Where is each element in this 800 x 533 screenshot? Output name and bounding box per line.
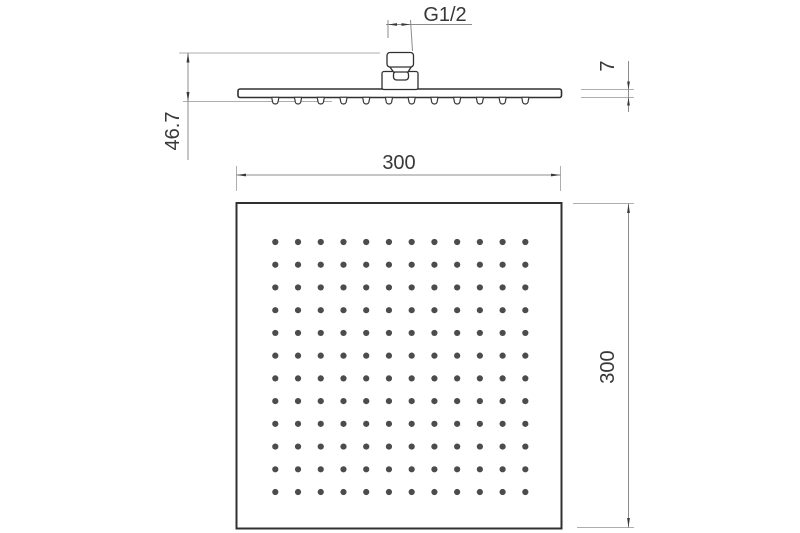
spray-hole: [522, 489, 528, 495]
nozzle-bump: [385, 97, 392, 104]
spray-hole: [318, 375, 324, 381]
connector-nipple: [387, 53, 414, 68]
spray-hole: [431, 307, 437, 313]
width-label: 300: [382, 152, 415, 174]
spray-hole: [363, 239, 369, 245]
nozzle-bump: [499, 97, 506, 104]
spray-hole: [522, 307, 528, 313]
spray-hole: [295, 239, 301, 245]
spray-hole: [340, 466, 346, 472]
spray-hole: [295, 284, 301, 290]
spray-hole: [454, 284, 460, 290]
spray-hole: [363, 443, 369, 449]
spray-hole: [500, 375, 506, 381]
technical-drawing-page: 46.7 G1/2 7: [0, 0, 800, 533]
dimension-width: 300: [237, 152, 561, 191]
spray-hole: [522, 421, 528, 427]
spray-hole: [454, 489, 460, 495]
spray-hole: [409, 398, 415, 404]
nozzle-bump: [454, 97, 461, 104]
spray-hole: [272, 421, 278, 427]
spray-hole: [431, 284, 437, 290]
spray-hole: [477, 262, 483, 268]
spray-hole: [522, 466, 528, 472]
spray-hole: [409, 284, 415, 290]
spray-hole: [477, 421, 483, 427]
nozzle-bump: [431, 97, 438, 104]
spray-hole: [295, 307, 301, 313]
plate-thickness-label: 7: [597, 60, 619, 71]
spray-hole: [500, 443, 506, 449]
spray-hole: [272, 398, 278, 404]
spray-hole: [386, 421, 392, 427]
spray-hole: [522, 330, 528, 336]
spray-hole: [522, 239, 528, 245]
spray-hole: [477, 375, 483, 381]
spray-hole: [454, 239, 460, 245]
nozzle-bump: [363, 97, 370, 104]
spray-hole: [272, 239, 278, 245]
spray-hole: [272, 330, 278, 336]
spray-hole: [522, 375, 528, 381]
dimension-height: 300: [573, 204, 634, 528]
spray-hole: [363, 284, 369, 290]
spray-hole: [454, 353, 460, 359]
spray-hole: [454, 307, 460, 313]
spray-hole: [340, 421, 346, 427]
spray-hole: [477, 307, 483, 313]
spray-hole: [318, 284, 324, 290]
spray-hole: [431, 421, 437, 427]
spray-hole: [500, 330, 506, 336]
spray-hole: [477, 353, 483, 359]
spray-hole: [318, 239, 324, 245]
spray-hole: [431, 239, 437, 245]
spray-hole: [431, 353, 437, 359]
spray-hole: [522, 398, 528, 404]
nozzle-bump: [272, 97, 279, 104]
spray-hole: [340, 239, 346, 245]
spray-hole: [272, 466, 278, 472]
spray-hole: [340, 443, 346, 449]
spray-hole: [363, 489, 369, 495]
spray-hole: [318, 466, 324, 472]
spray-hole: [431, 466, 437, 472]
spray-hole: [363, 375, 369, 381]
shower-head-drawing: 46.7 G1/2 7: [0, 0, 800, 533]
connector-inner-tab: [394, 72, 409, 81]
spray-hole: [431, 443, 437, 449]
spray-hole: [272, 307, 278, 313]
spray-hole: [363, 398, 369, 404]
spray-hole: [386, 443, 392, 449]
spray-hole: [500, 466, 506, 472]
spray-hole: [363, 421, 369, 427]
spray-hole: [363, 262, 369, 268]
spray-hole: [340, 330, 346, 336]
spray-hole: [477, 466, 483, 472]
spray-hole: [477, 330, 483, 336]
spray-hole: [522, 443, 528, 449]
spray-hole: [454, 466, 460, 472]
side-view-nozzles: [272, 97, 529, 104]
spray-hole: [295, 489, 301, 495]
spray-hole: [500, 353, 506, 359]
spray-hole: [272, 375, 278, 381]
spray-hole: [318, 489, 324, 495]
spray-hole: [340, 284, 346, 290]
spray-hole: [318, 307, 324, 313]
spray-hole: [272, 353, 278, 359]
spray-hole: [454, 262, 460, 268]
spray-hole: [386, 353, 392, 359]
spray-hole: [386, 307, 392, 313]
spray-hole: [386, 466, 392, 472]
spray-hole: [363, 330, 369, 336]
spray-hole: [454, 398, 460, 404]
spray-hole: [386, 489, 392, 495]
spray-hole: [363, 466, 369, 472]
spray-hole: [386, 398, 392, 404]
spray-hole: [295, 466, 301, 472]
spray-hole: [386, 262, 392, 268]
spray-hole: [409, 466, 415, 472]
spray-hole: [409, 262, 415, 268]
connector: [382, 53, 418, 90]
spray-hole: [272, 443, 278, 449]
spray-hole: [522, 284, 528, 290]
spray-hole: [454, 443, 460, 449]
spray-hole: [409, 307, 415, 313]
spray-hole: [295, 353, 301, 359]
spray-hole: [318, 330, 324, 336]
nozzle-bump: [522, 97, 529, 104]
spray-hole: [409, 239, 415, 245]
spray-hole: [409, 375, 415, 381]
spray-hole: [363, 353, 369, 359]
spray-hole: [454, 375, 460, 381]
dimension-plate-thickness: 7: [581, 60, 634, 112]
spray-hole: [272, 489, 278, 495]
spray-hole: [295, 421, 301, 427]
spray-hole: [431, 375, 437, 381]
spray-hole: [477, 489, 483, 495]
spray-hole: [409, 353, 415, 359]
side-view: 46.7 G1/2 7: [162, 4, 634, 160]
spray-hole: [295, 262, 301, 268]
spray-hole: [386, 375, 392, 381]
spray-hole: [318, 398, 324, 404]
spray-hole: [500, 284, 506, 290]
plate-side-profile: [238, 89, 562, 98]
spray-hole: [409, 330, 415, 336]
spray-hole: [409, 443, 415, 449]
height-label: 300: [597, 350, 619, 383]
spray-hole: [340, 375, 346, 381]
spray-hole: [340, 262, 346, 268]
thread-size-label: G1/2: [423, 4, 466, 26]
spray-hole: [409, 421, 415, 427]
nozzle-bump: [340, 97, 347, 104]
dimension-total-height: 46.7: [162, 53, 380, 160]
spray-hole: [477, 443, 483, 449]
spray-hole: [477, 398, 483, 404]
spray-hole: [295, 398, 301, 404]
spray-hole: [500, 398, 506, 404]
spray-hole: [386, 284, 392, 290]
nozzle-bump: [408, 97, 415, 104]
bottom-view: 300 300: [237, 152, 635, 529]
spray-hole: [340, 398, 346, 404]
spray-hole: [295, 330, 301, 336]
spray-hole: [477, 284, 483, 290]
nozzle-bump: [476, 97, 483, 104]
spray-hole: [522, 262, 528, 268]
spray-hole: [295, 375, 301, 381]
spray-hole: [272, 284, 278, 290]
spray-hole: [500, 421, 506, 427]
spray-hole: [363, 307, 369, 313]
spray-hole: [340, 307, 346, 313]
spray-hole: [318, 353, 324, 359]
spray-hole: [431, 489, 437, 495]
face-plate-square: [237, 203, 562, 529]
dimension-thread: G1/2: [386, 4, 472, 51]
spray-hole: [454, 421, 460, 427]
spray-hole: [500, 307, 506, 313]
total-height-label: 46.7: [162, 112, 184, 151]
spray-hole: [500, 262, 506, 268]
spray-hole: [431, 262, 437, 268]
spray-hole: [522, 353, 528, 359]
spray-hole: [386, 330, 392, 336]
spray-hole: [431, 398, 437, 404]
spray-hole: [454, 330, 460, 336]
spray-hole: [318, 421, 324, 427]
spray-hole: [318, 262, 324, 268]
spray-hole: [477, 239, 483, 245]
nozzle-bump: [317, 97, 324, 104]
nozzle-bump: [294, 97, 301, 104]
spray-hole: [318, 443, 324, 449]
spray-hole: [386, 239, 392, 245]
spray-hole: [340, 489, 346, 495]
spray-hole: [295, 443, 301, 449]
spray-hole: [500, 489, 506, 495]
spray-hole: [431, 330, 437, 336]
spray-hole: [340, 353, 346, 359]
spray-hole: [272, 262, 278, 268]
spray-hole: [500, 239, 506, 245]
spray-hole: [409, 489, 415, 495]
